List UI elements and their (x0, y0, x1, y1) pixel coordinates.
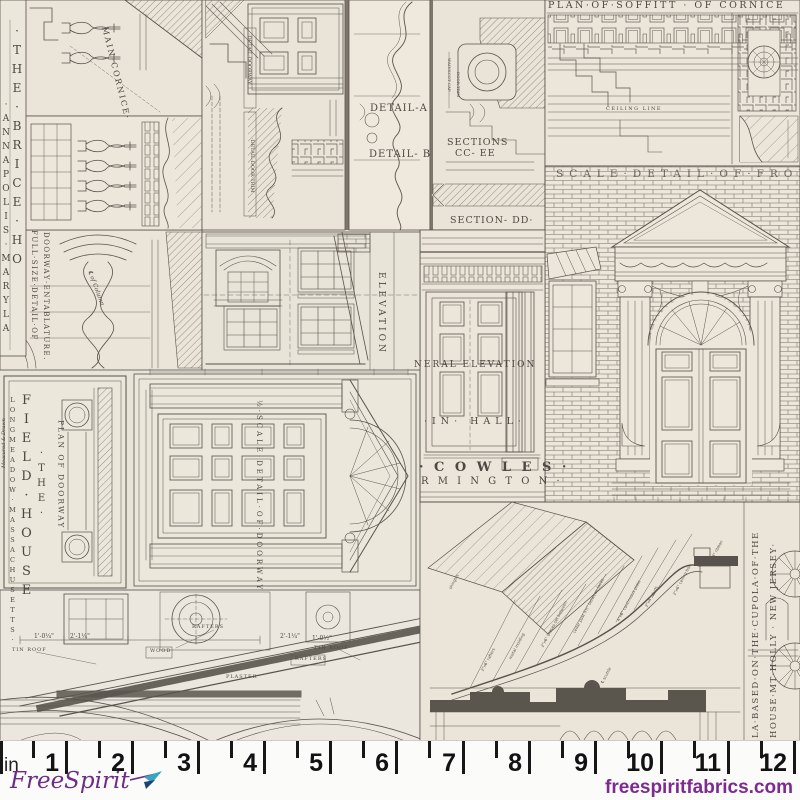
detail-doorway-label: ·DETAIL·DOORWAY (246, 34, 251, 84)
rafters-left-label: RAFTERS (192, 625, 224, 630)
full-size-detail-label-2: DOORWAY·ENTABLATURE. (42, 232, 49, 361)
scale-detail-front-title: SCALE·DETAIL·OF·FRONT (556, 169, 800, 180)
tin-roof-right-label: TIN ROOF (314, 646, 349, 651)
soffit-plan-title: PLAN·OF·SOFFITT · OF CORNICE (548, 1, 785, 11)
detail-door-trim-label: ·DETAIL·DOOR·TRIM (249, 138, 254, 193)
ruler-tick (727, 741, 730, 774)
plaster-label: PLASTER (226, 675, 257, 680)
wood-label: WOOD (150, 649, 171, 654)
ruler-tick (263, 741, 266, 774)
ruler-tick (197, 741, 200, 774)
ruler-number: 9 (548, 749, 588, 778)
inch-ruler: in 1 2 3 4 5 6 7 8 9 10 11 12 FreeSpirit… (0, 740, 800, 800)
half-scale-doorway-label: ½·SCALE·DETAIL·OF·DOORWAY (255, 400, 262, 592)
website-url: freespiritfabrics.com (605, 777, 793, 799)
ruler-number: 8 (482, 749, 522, 778)
ruler-number: 4 (217, 749, 257, 778)
brice-title-label: ·THE·BRICE·HO (11, 24, 23, 271)
fabric-swatch-image: ·THE·BRICE·HO ·ANNAPOLIS·MARYLA MAIN·COR… (0, 0, 800, 800)
sections-label-2: CC- EE (455, 149, 496, 159)
ruler-tick (329, 741, 332, 774)
rafters-right-label: RAFTERS (295, 657, 327, 662)
panel-detail-a-b (345, 0, 430, 230)
field-house-the-label: ·THE· (36, 448, 46, 523)
panel-house-elevation (202, 232, 420, 370)
panel-detail-doorway-trim (202, 0, 345, 230)
panel-brice-cornice (25, 0, 202, 230)
detail-a-label: DETAIL-A (370, 104, 428, 114)
panel-soffit-plan (545, 0, 800, 166)
sections-label-1: SECTIONS (447, 138, 508, 148)
general-elevation-label: NERAL ELEVATION (414, 361, 536, 370)
section-dd-label: SECTION- DD· (450, 216, 533, 226)
freespirit-logo: FreeSpirit (10, 768, 164, 794)
panel-rotated-doorway (134, 369, 416, 586)
farmington-label: R M I N G T O N · (421, 477, 563, 487)
ruler-number: 12 (747, 749, 787, 778)
ruler-number: 11 (681, 749, 721, 778)
dimension-label-3: 2'-1¼" (280, 634, 300, 640)
ruler-tick (395, 741, 398, 774)
dimension-label-4: 1'-0½" (312, 636, 332, 642)
plan-of-doorway-label: PLAN OF DOORWAY (57, 420, 65, 529)
full-size-detail-label-1: FULL·SIZE·DETAIL·OF (30, 230, 37, 341)
elevation-label: ELEVATION (376, 272, 385, 355)
brice-subtitle-label: ·ANNAPOLIS·MARYLA (1, 100, 10, 338)
panel-sections (430, 0, 545, 230)
ruler-number: 10 (614, 749, 654, 778)
freespirit-logo-text: FreeSpirit (10, 768, 130, 794)
ceiling-line-label: CEILING LINE (606, 107, 662, 112)
field-house-credit-label: Measured & Drawn (2, 398, 7, 468)
ruler-tick (594, 741, 597, 774)
ruler-tick (793, 741, 796, 774)
panel-cupola-section (420, 502, 800, 742)
ruler-tick (462, 741, 465, 774)
dimension-label-1: 1'-0¼" (34, 634, 54, 640)
panel-front-doorway (545, 166, 800, 518)
ruler-number: 5 (283, 749, 323, 778)
field-house-town-label: LONGMEADOW·MASSACHUSETTS· (9, 396, 16, 646)
tin-roof-left-label: TIN ROOF (12, 648, 47, 653)
cupola-title-label-2: HOUSE·MT·HOLLY · NEW JERSEY· (770, 513, 779, 738)
wainscot-cap-label: WAINSCOT CAP (447, 58, 451, 92)
dimension-label-2: 2'-1¼" (70, 634, 90, 640)
detail-b-label: DETAIL- B (369, 150, 431, 160)
cowles-label: · C O W L E S · (419, 461, 569, 474)
ruler-tick (660, 741, 663, 774)
ruler-number: 6 (349, 749, 389, 778)
cupola-title-label-1: LA·BASED·ON·THE·CUPOLA·OF·THE (752, 513, 761, 738)
ruler-tick (0, 741, 3, 774)
logo-swoosh-icon (130, 769, 164, 791)
ruler-number: 7 (416, 749, 456, 778)
ruler-tick (528, 741, 531, 774)
field-house-name-label: FIELD·HOUSE (20, 393, 33, 602)
door-trim-label: DOOR TRIM (456, 72, 460, 97)
main-hall-label: ·IN· HALL· (424, 417, 526, 427)
